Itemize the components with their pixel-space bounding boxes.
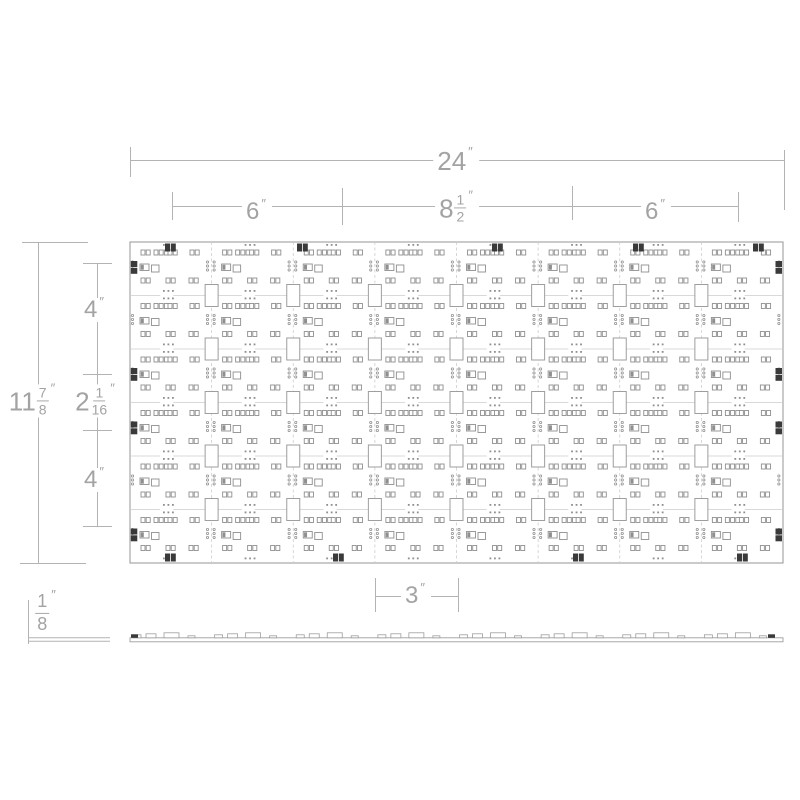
- dim-value: 2: [75, 388, 89, 414]
- dim-label-detail-width: 3 ″: [401, 584, 431, 608]
- dim-unit: ″: [468, 188, 475, 201]
- dim-label-height-bottom: 4 ″: [80, 468, 110, 492]
- fraction: 116: [91, 384, 109, 417]
- panel-side-view: [130, 633, 783, 642]
- dim-label-width-right: 6 ″: [641, 200, 671, 224]
- dim-label-width-left: 6 ″: [242, 200, 272, 224]
- dim-value: 6: [246, 200, 259, 224]
- fraction: 12: [455, 191, 467, 224]
- fraction-denominator: 2: [456, 209, 466, 225]
- fraction-numerator: 1: [455, 191, 467, 208]
- fraction: 78: [37, 384, 49, 417]
- dim-unit: ″: [51, 588, 58, 601]
- dim-unit: ″: [51, 381, 58, 394]
- dim-label-width-center: 8 12 ″: [435, 191, 479, 224]
- dim-value: 3: [405, 584, 418, 608]
- dim-unit: ″: [420, 581, 427, 594]
- fraction-numerator: 1: [35, 591, 49, 614]
- dim-label-height-center: 2 116 ″: [71, 384, 121, 417]
- dim-value: 11: [9, 388, 36, 414]
- dim-unit: ″: [660, 197, 667, 210]
- dim-label-width-total: 24 ″: [433, 148, 479, 174]
- fraction-numerator: 1: [94, 384, 106, 401]
- fraction-denominator: 8: [38, 402, 48, 418]
- fraction-denominator: 8: [36, 614, 48, 636]
- dim-value: 4: [84, 468, 97, 492]
- dim-label-thickness: 18 ″: [30, 591, 62, 635]
- dim-value: 8: [439, 195, 453, 221]
- dim-unit: ″: [261, 197, 268, 210]
- dim-value: 24: [437, 148, 466, 174]
- dim-value: 4: [84, 298, 97, 322]
- dim-label-height-top: 4 ″: [80, 298, 110, 322]
- dim-value: 6: [645, 200, 658, 224]
- dim-label-height-total: 11 78 ″: [5, 384, 61, 417]
- dim-unit: ″: [99, 295, 106, 308]
- dim-unit: ″: [110, 381, 117, 394]
- fraction: 18: [35, 591, 49, 635]
- fraction-denominator: 16: [91, 402, 109, 418]
- dim-unit: ″: [468, 145, 475, 158]
- dim-unit: ″: [99, 465, 106, 478]
- panel-top-view: [130, 242, 783, 563]
- fraction-numerator: 7: [37, 384, 49, 401]
- pcb-panel-dimension-drawing: 24 ″ 6 ″ 8 12 ″ 6 ″ 11 78 ″ 4 ″ 2 116 ″ …: [0, 0, 800, 800]
